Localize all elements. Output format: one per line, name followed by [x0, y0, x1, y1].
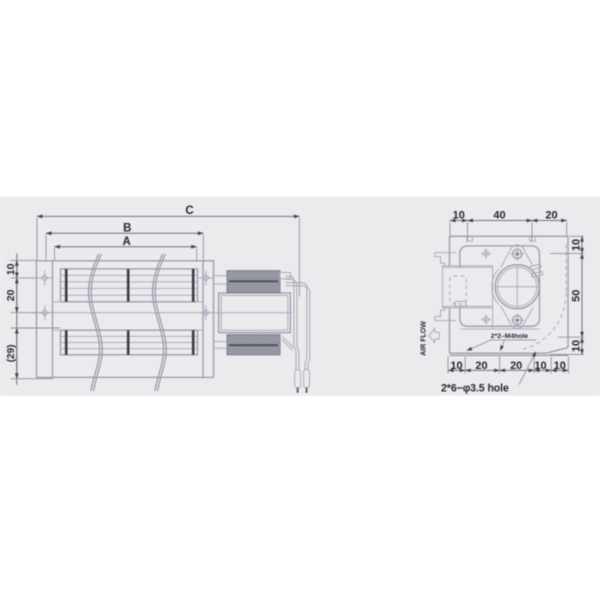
svg-text:10: 10: [534, 360, 546, 372]
svg-text:2*2–M4hole: 2*2–M4hole: [491, 333, 529, 340]
svg-text:10: 10: [554, 360, 566, 372]
svg-text:40: 40: [493, 210, 505, 222]
svg-text:20: 20: [5, 289, 17, 301]
svg-text:AIR FLOW: AIR FLOW: [420, 321, 427, 356]
svg-text:C: C: [185, 205, 193, 217]
svg-text:20: 20: [475, 360, 487, 372]
svg-text:10: 10: [450, 360, 462, 372]
svg-text:10: 10: [5, 263, 17, 275]
svg-text:20: 20: [545, 210, 557, 222]
svg-text:10: 10: [571, 239, 583, 251]
svg-text:10: 10: [453, 210, 465, 222]
svg-text:20: 20: [510, 360, 522, 372]
svg-text:(29): (29): [6, 345, 17, 363]
svg-text:B: B: [123, 222, 131, 234]
svg-text:10: 10: [571, 340, 583, 352]
svg-text:2*6−φ3.5 hole: 2*6−φ3.5 hole: [441, 382, 509, 394]
svg-text:50: 50: [571, 290, 583, 302]
svg-text:A: A: [122, 236, 130, 248]
